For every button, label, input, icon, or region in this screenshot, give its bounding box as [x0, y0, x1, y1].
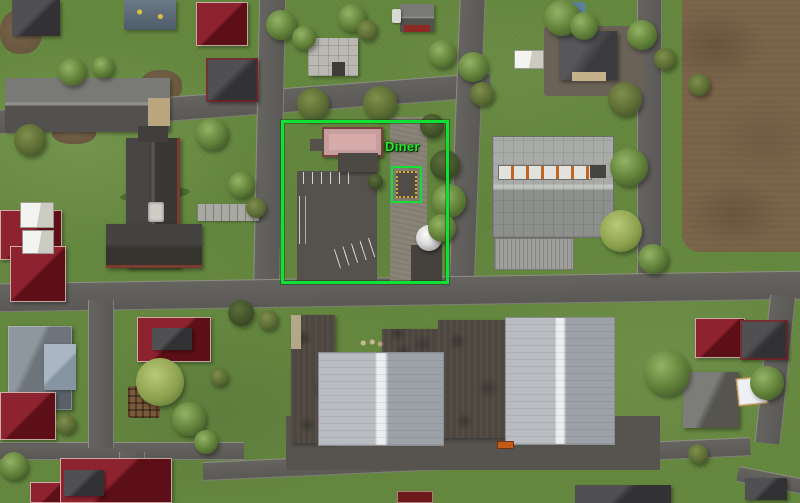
industrial-silver-roof	[505, 317, 615, 445]
road	[88, 300, 114, 448]
tree	[357, 20, 377, 40]
tree	[136, 358, 184, 406]
industrial-hall	[438, 320, 508, 438]
tree	[428, 40, 456, 68]
house-porch	[572, 72, 606, 81]
tree	[627, 20, 657, 50]
tree	[608, 82, 642, 116]
shed-door	[332, 62, 345, 76]
parked-car	[392, 9, 401, 23]
tree	[688, 74, 710, 96]
plowed-field	[682, 0, 800, 252]
house-roof-section	[64, 470, 104, 496]
warehouse-skylight	[498, 165, 592, 180]
tree	[570, 12, 598, 40]
house	[740, 320, 788, 360]
tree	[297, 88, 329, 120]
tree	[363, 86, 397, 120]
tree	[14, 124, 46, 156]
house	[397, 491, 433, 503]
red-roof-house	[0, 392, 56, 440]
tree	[194, 430, 218, 454]
debris	[358, 338, 384, 348]
church-statue	[148, 202, 164, 222]
tree	[638, 244, 668, 274]
tree	[470, 82, 494, 106]
church-wing-roof	[106, 224, 202, 268]
tree	[600, 210, 642, 252]
tree	[246, 198, 266, 218]
red-roof-house	[10, 246, 66, 302]
tree	[292, 26, 316, 50]
blue-gray-wing	[44, 344, 76, 390]
marker-dashed-square	[396, 171, 417, 198]
white-tent	[20, 202, 54, 228]
house	[575, 485, 671, 503]
house	[683, 372, 739, 428]
diner-annotation-label: Diner	[385, 139, 420, 154]
house	[206, 58, 258, 102]
church-entry	[138, 126, 168, 142]
blue-canopy-structure	[124, 0, 176, 30]
tree	[228, 172, 254, 198]
house-wall	[404, 25, 430, 32]
game-map-viewport[interactable]: Diner	[0, 0, 800, 503]
diner-highlight-box[interactable]	[281, 120, 449, 284]
white-canopy	[514, 50, 544, 69]
tree	[56, 414, 76, 434]
industrial-tan-edge	[291, 315, 301, 349]
orange-truck	[497, 441, 514, 449]
tree	[196, 118, 228, 150]
tree	[688, 444, 708, 464]
tree	[750, 366, 784, 400]
warehouse-skylight-end	[590, 165, 606, 178]
tree	[210, 368, 228, 386]
house	[745, 478, 787, 500]
tree	[92, 56, 114, 78]
tree	[458, 52, 488, 82]
house	[12, 0, 60, 36]
red-roof-house	[196, 2, 248, 46]
tree	[258, 310, 278, 330]
road	[448, 0, 485, 296]
tree	[0, 452, 28, 480]
tree	[58, 58, 86, 86]
tree	[610, 148, 648, 186]
tree	[228, 300, 254, 326]
storage-shed	[494, 238, 574, 270]
white-tent	[22, 230, 54, 254]
tree	[644, 350, 690, 396]
red-roof-house	[695, 318, 745, 358]
house-yard	[148, 98, 170, 126]
diner-placement-marker[interactable]	[391, 166, 422, 203]
industrial-silver-roof	[318, 352, 444, 446]
tree	[654, 48, 676, 70]
warehouse	[492, 136, 614, 238]
house-roof-section	[152, 328, 192, 350]
